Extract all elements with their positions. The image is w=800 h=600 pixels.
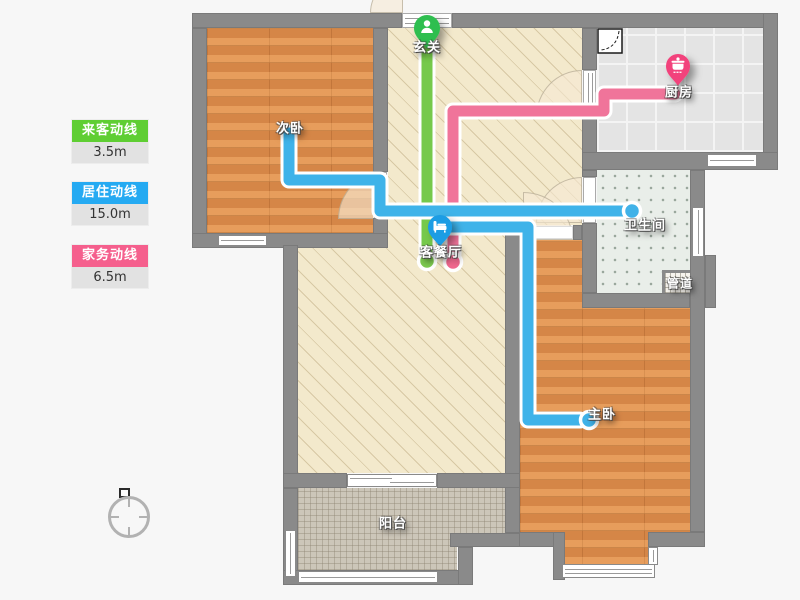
- room-label-bathroom: 卫生间: [624, 215, 666, 234]
- wall: [705, 255, 716, 308]
- window: [298, 571, 438, 583]
- room-label-balcony: 阳台: [379, 513, 407, 532]
- wall: [373, 28, 388, 172]
- wall: [505, 225, 520, 547]
- wall: [582, 223, 597, 293]
- wall: [283, 245, 298, 488]
- legend-living-label: 居住动线: [72, 182, 148, 204]
- window: [707, 154, 757, 167]
- legend-living-value: 15.0m: [72, 204, 148, 225]
- second-bedroom-door: [374, 172, 387, 218]
- master-bedroom-doorway: [523, 226, 573, 239]
- entry-door-arc: [370, 0, 403, 13]
- legend-housework-label: 家务动线: [72, 245, 148, 267]
- room-label-living-dining: 客餐厅: [420, 242, 462, 261]
- room-label-foyer: 玄关: [413, 37, 441, 56]
- compass-icon: [108, 496, 150, 538]
- window: [218, 235, 267, 246]
- legend-guest-route[interactable]: 来客动线 3.5m: [72, 120, 148, 163]
- legend-guest-value: 3.5m: [72, 142, 148, 163]
- room-label-duct: 管道: [667, 275, 693, 292]
- legend-housework-value: 6.5m: [72, 267, 148, 288]
- legend-living-route[interactable]: 居住动线 15.0m: [72, 182, 148, 225]
- room-label-kitchen: 厨房: [665, 82, 693, 101]
- kitchen-door: [583, 70, 596, 117]
- wall: [458, 547, 473, 585]
- wall: [582, 28, 597, 70]
- kitchen-corner-door-symbol: [597, 28, 623, 54]
- floor-plan-canvas: 玄关 次卧 厨房 卫生间 客餐厅 管道 主卧 阳台 来客动线 3.5m 居住动线…: [0, 0, 800, 600]
- wall: [437, 473, 520, 488]
- bathroom-door: [583, 177, 596, 223]
- wall: [648, 532, 705, 547]
- wall: [450, 533, 520, 547]
- wall: [582, 170, 597, 177]
- wall: [283, 473, 347, 488]
- room-label-master-bedroom: 主卧: [588, 404, 616, 423]
- wall: [573, 225, 582, 240]
- entry-door: [402, 13, 452, 28]
- window: [285, 530, 296, 577]
- wall: [192, 13, 402, 28]
- wall: [192, 28, 207, 248]
- wall: [582, 293, 690, 308]
- wall: [763, 13, 778, 170]
- room-label-second-bedroom: 次卧: [276, 118, 304, 137]
- window: [692, 207, 704, 257]
- window: [648, 547, 658, 565]
- legend-housework-route[interactable]: 家务动线 6.5m: [72, 245, 148, 288]
- legend-guest-label: 来客动线: [72, 120, 148, 142]
- bay-window: [562, 564, 655, 578]
- wall: [452, 13, 778, 28]
- balcony-sliding-door: [347, 474, 437, 487]
